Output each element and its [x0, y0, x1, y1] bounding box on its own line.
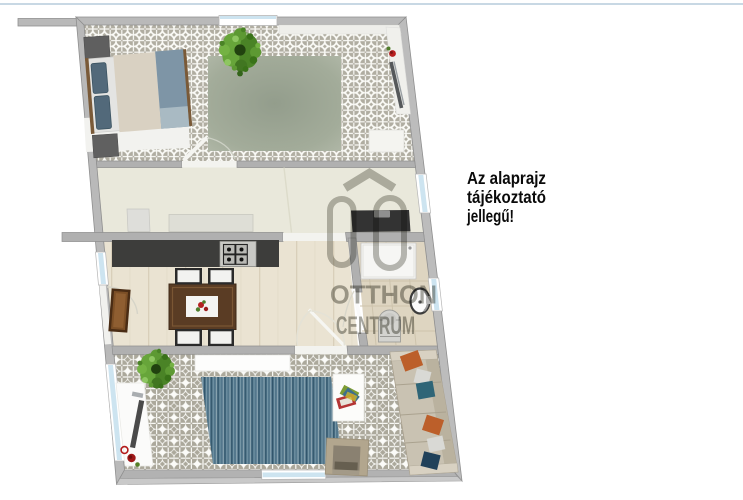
svg-text:OTTHON: OTTHON	[330, 280, 437, 310]
svg-text:tájékoztató: tájékoztató	[467, 187, 546, 207]
svg-text:jellegű!: jellegű!	[466, 206, 514, 226]
svg-text:Az alaprajz: Az alaprajz	[467, 168, 546, 188]
svg-text:CENTRUM: CENTRUM	[336, 312, 415, 340]
